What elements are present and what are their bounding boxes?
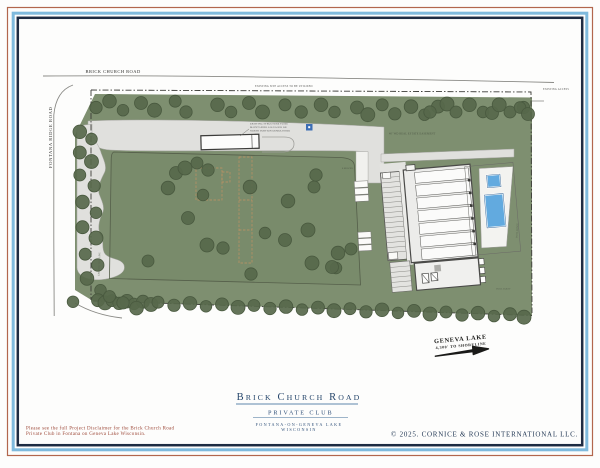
svg-text:8 SPACES: 8 SPACES <box>342 167 353 170</box>
svg-text:Please see the full Project Di: Please see the full Project Disclaimer f… <box>26 427 175 432</box>
svg-text:WISCONSIN: WISCONSIN <box>281 427 316 432</box>
svg-text:Private Club in Fontana on Gen: Private Club in Fontana on Geneva Lake W… <box>26 432 146 437</box>
svg-text:NORTH PORTION DEMOLISHED: NORTH PORTION DEMOLISHED <box>250 130 290 133</box>
svg-text:© 2025. CORNICE & ROSE INTERN: © 2025. CORNICE & ROSE INTERNATIONAL LLC… <box>391 431 578 439</box>
svg-text:EXISTING SITE ACCESS TO BE UTI: EXISTING SITE ACCESS TO BE UTILIZED <box>255 85 313 88</box>
svg-text:EXISTING ACCESS: EXISTING ACCESS <box>543 88 569 91</box>
svg-text:PRIVATE CLUB: PRIVATE CLUB <box>268 410 334 417</box>
svg-text:FONTANA RIDGE ROAD: FONTANA RIDGE ROAD <box>48 106 53 168</box>
svg-text:BRICK CHURCH ROAD: BRICK CHURCH ROAD <box>237 392 362 403</box>
svg-text:BRICK CHURCH ROAD: BRICK CHURCH ROAD <box>86 69 141 74</box>
svg-text:POOL EQUIP: POOL EQUIP <box>496 288 511 291</box>
svg-text:40' WD REAL ESTATE EASEMENT: 40' WD REAL ESTATE EASEMENT <box>389 133 436 136</box>
